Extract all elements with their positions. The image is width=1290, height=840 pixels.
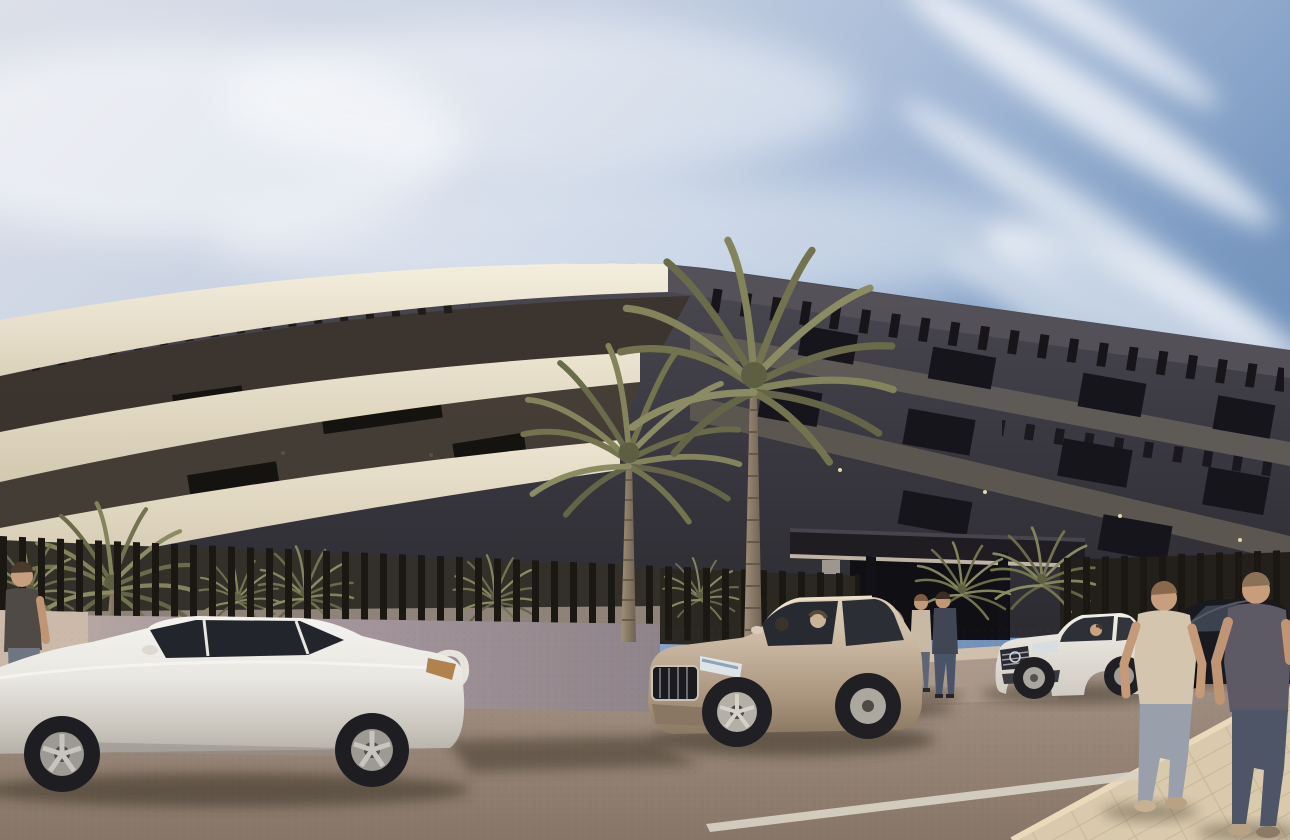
- suv-mirror: [751, 626, 763, 634]
- suv-driver: [775, 617, 789, 631]
- sedan-mirror: [142, 645, 158, 655]
- suv-grille: [652, 666, 698, 700]
- scene-canvas: TO: [0, 0, 1290, 840]
- render-image: TO: [0, 0, 1290, 840]
- entrance-panel: [822, 560, 840, 574]
